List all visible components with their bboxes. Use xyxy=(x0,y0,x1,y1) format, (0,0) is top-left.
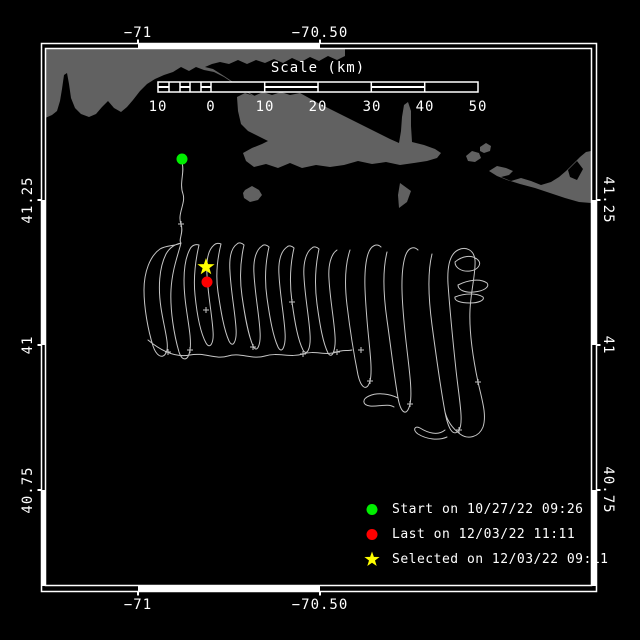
gps-track-path[interactable] xyxy=(144,163,488,439)
scale-tick-40: 40 xyxy=(416,99,435,115)
legend-row-selected: Selected on 12/03/22 09:11 xyxy=(360,547,609,572)
last-legend-icon xyxy=(360,522,384,547)
last-marker-dot[interactable] xyxy=(202,277,213,288)
legend-label-start: Start on 10/27/22 09:26 xyxy=(392,502,584,517)
scale-tick-20: 20 xyxy=(309,99,328,115)
frame-fill-left-lower xyxy=(42,490,47,586)
frame-fill-top xyxy=(138,44,320,50)
y-axis-label-left-41: 41 xyxy=(20,336,36,355)
scale-bar-title: Scale (km) xyxy=(271,60,365,76)
y-axis-label-right-41: 41 xyxy=(600,336,616,355)
land-small-island-southwest xyxy=(243,186,262,202)
legend-row-start: Start on 10/27/22 09:26 xyxy=(360,497,609,522)
scale-tick-30: 30 xyxy=(363,99,382,115)
x-axis-label-top-right: −70.50 xyxy=(292,25,349,41)
legend: Start on 10/27/22 09:26 Last on 12/03/22… xyxy=(360,497,609,572)
frame-fill-right-upper xyxy=(592,200,597,345)
legend-row-last: Last on 12/03/22 11:11 xyxy=(360,522,609,547)
selected-marker-star[interactable] xyxy=(197,258,214,274)
y-axis-label-left-4125: 41.25 xyxy=(20,176,36,223)
frame-fill-left-upper xyxy=(42,200,47,345)
start-marker-dot[interactable] xyxy=(177,154,188,165)
legend-label-last: Last on 12/03/22 11:11 xyxy=(392,527,575,542)
last-dot-icon xyxy=(367,529,378,540)
start-legend-icon xyxy=(360,497,384,522)
x-axis-label-top-left: −71 xyxy=(124,25,152,41)
scale-tick-10-left: 10 xyxy=(149,99,168,115)
selected-star-icon xyxy=(364,552,379,567)
start-dot-icon xyxy=(367,504,378,515)
land-islet-east xyxy=(480,143,491,153)
scale-tick-0: 0 xyxy=(206,99,215,115)
selected-legend-icon xyxy=(360,547,384,572)
frame-fill-bottom xyxy=(138,586,320,592)
x-axis-label-bottom-right: −70.50 xyxy=(292,597,349,613)
y-axis-label-left-4075: 40.75 xyxy=(20,466,36,513)
x-axis-label-bottom-left: −71 xyxy=(124,597,152,613)
scale-tick-50: 50 xyxy=(469,99,488,115)
land-small-shoal xyxy=(398,183,411,208)
map-window: −71 −70.50 −71 −70.50 41.25 41 40.75 41.… xyxy=(0,0,640,640)
scale-tick-10: 10 xyxy=(256,99,275,115)
y-axis-label-right-4125: 41.25 xyxy=(600,176,616,223)
legend-label-selected: Selected on 12/03/22 09:11 xyxy=(392,552,609,567)
land-islet-west xyxy=(466,151,481,162)
